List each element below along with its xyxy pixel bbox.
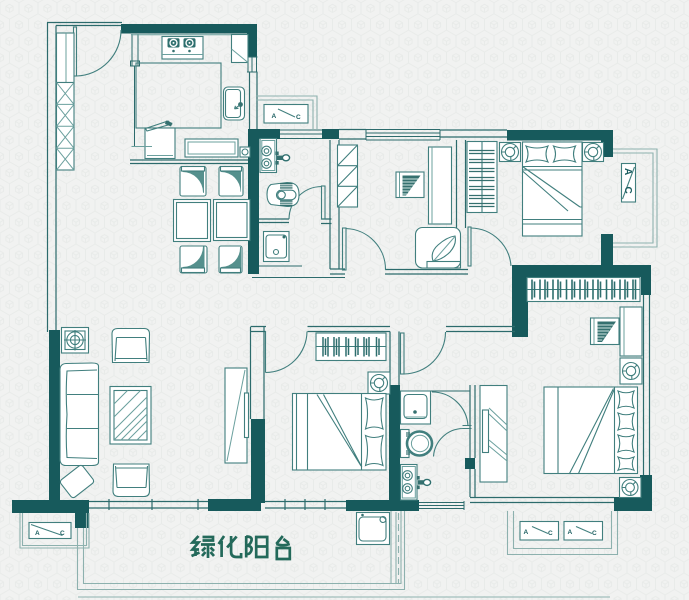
svg-text:A: A xyxy=(568,529,573,536)
svg-text:A: A xyxy=(622,168,633,175)
svg-text:C: C xyxy=(622,187,633,194)
svg-text:A: A xyxy=(272,113,277,120)
svg-text:A: A xyxy=(524,529,529,536)
svg-text:C: C xyxy=(296,114,301,121)
svg-text:C: C xyxy=(592,530,597,537)
svg-text:C: C xyxy=(60,530,65,537)
svg-text:A: A xyxy=(35,530,40,537)
svg-text:C: C xyxy=(548,530,553,537)
